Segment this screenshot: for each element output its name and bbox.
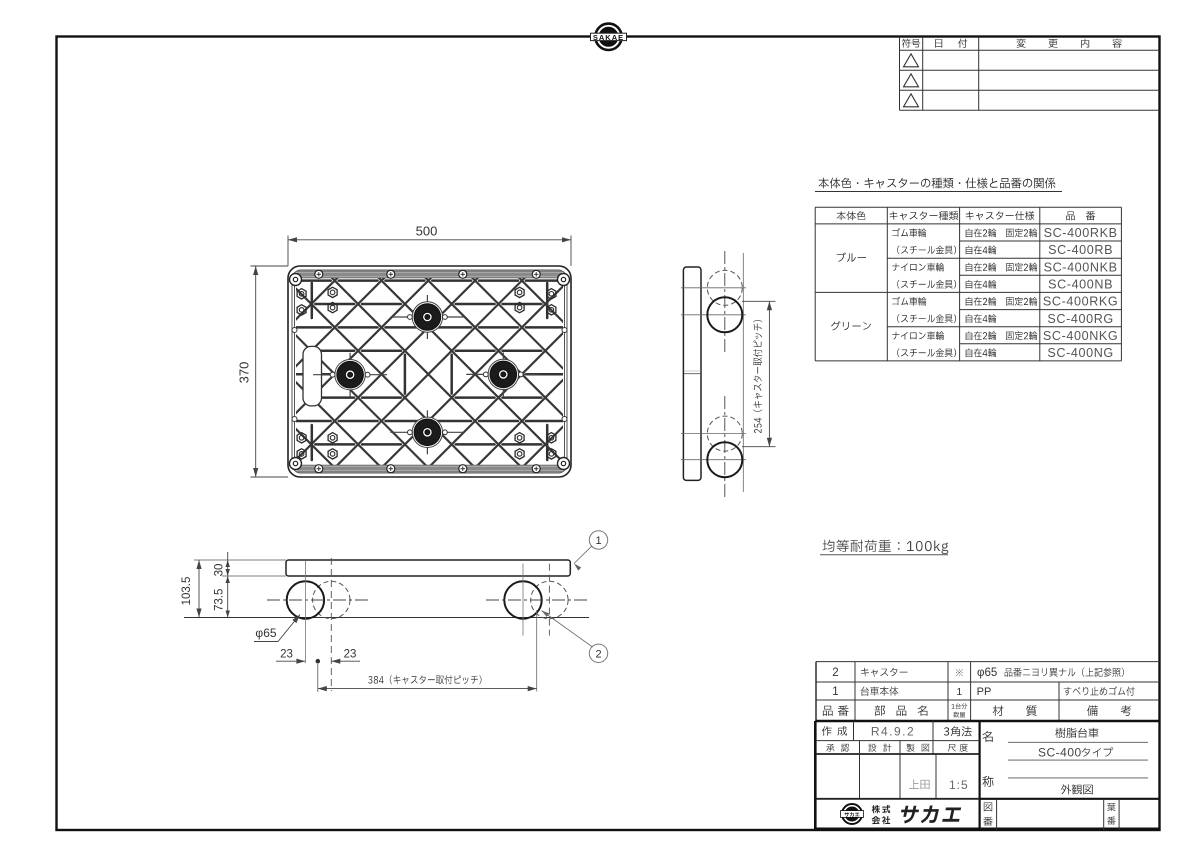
svg-text:1: 1 (956, 686, 962, 698)
svg-text:SC-400NKG: SC-400NKG (1043, 329, 1118, 343)
svg-text:1: 1 (595, 535, 601, 547)
svg-text:23: 23 (280, 649, 293, 661)
svg-text:370: 370 (237, 362, 252, 384)
svg-text:73.5: 73.5 (214, 589, 226, 611)
svg-text:SC-400NG: SC-400NG (1047, 346, 1113, 360)
svg-text:SC-400NKB: SC-400NKB (1044, 260, 1118, 274)
svg-text:1: 1 (832, 686, 838, 698)
svg-text:R4.9.2: R4.9.2 (871, 725, 915, 739)
svg-text:30: 30 (214, 564, 226, 577)
svg-text:SC-400RKB: SC-400RKB (1044, 226, 1118, 240)
svg-text:φ65: φ65 (977, 667, 997, 679)
svg-text:SC-400RKG: SC-400RKG (1043, 295, 1118, 309)
svg-text:2: 2 (832, 667, 838, 679)
svg-text:SC-400: SC-400 (1038, 746, 1082, 760)
svg-text:500: 500 (416, 224, 438, 239)
svg-text:SC-400NB: SC-400NB (1048, 277, 1113, 291)
svg-text:SAKAE: SAKAE (593, 33, 624, 42)
svg-text:SC-400RB: SC-400RB (1048, 243, 1113, 257)
svg-text:SC-400RG: SC-400RG (1047, 312, 1113, 326)
svg-text:23: 23 (344, 649, 357, 661)
svg-text:φ65: φ65 (255, 626, 276, 640)
svg-text:103.5: 103.5 (181, 577, 193, 606)
svg-text:2: 2 (595, 648, 601, 660)
svg-text:PP: PP (977, 686, 992, 698)
svg-text:1:5: 1:5 (949, 778, 969, 792)
